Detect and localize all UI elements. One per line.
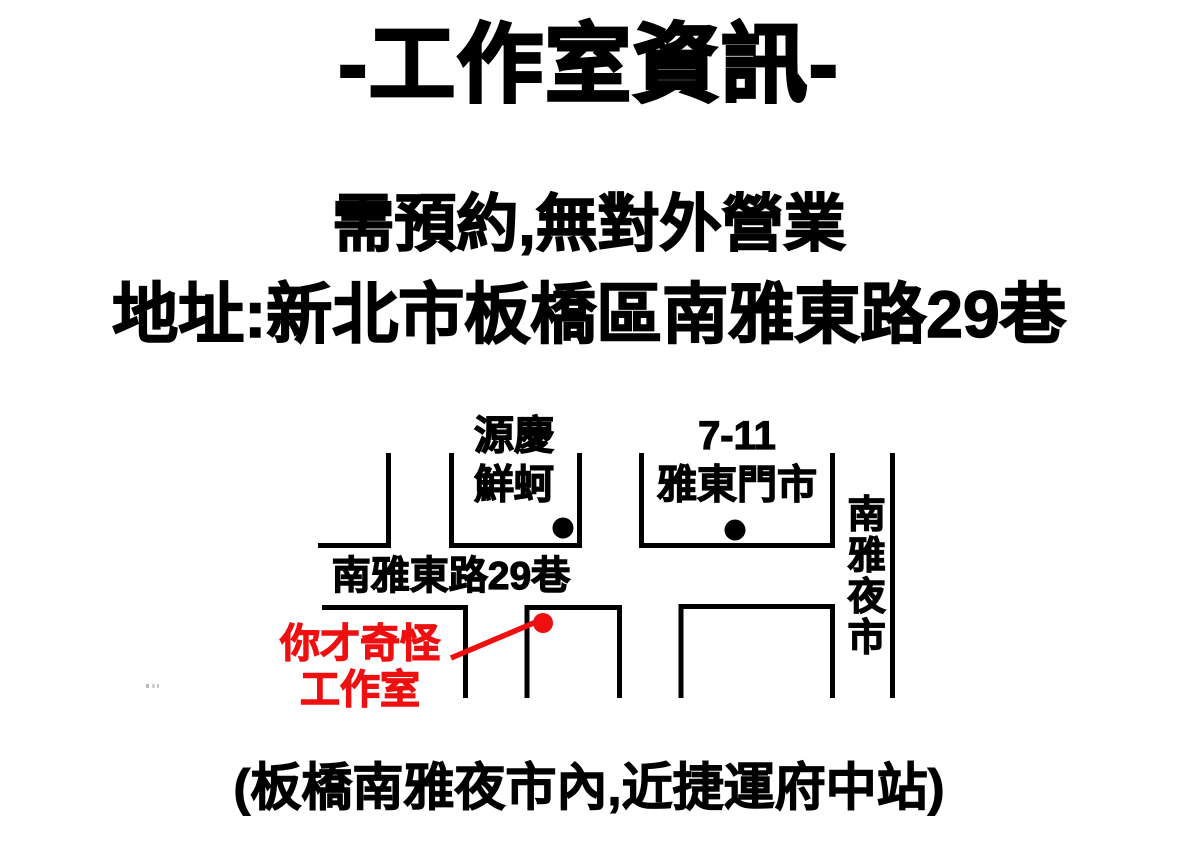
faint-artifact-mark [146, 683, 161, 689]
store1-marker-dot [553, 518, 574, 539]
night-market-label: 南雅夜市 [839, 494, 885, 658]
store2-label: 7-11 雅東門市 [657, 412, 817, 510]
studio-label-line1: 你才奇怪 [280, 621, 440, 667]
flyer-canvas: -工作室資訊- 需預約,無對外營業 地址:新北市板橋區南雅東路29巷 [0, 0, 1179, 842]
store1-label-line1: 源慶 [474, 412, 554, 461]
studio-marker-dot [533, 613, 553, 633]
store1-label: 源慶 鮮蚵 [474, 412, 554, 510]
studio-label: 你才奇怪 工作室 [280, 621, 440, 713]
studio-label-line2: 工作室 [280, 667, 440, 713]
store2-marker-dot [725, 520, 746, 541]
store2-label-line2: 雅東門市 [657, 461, 817, 510]
store2-label-line1: 7-11 [657, 412, 817, 461]
footer-caption: (板橋南雅夜市內,近捷運府中站) [233, 762, 944, 813]
store1-label-line2: 鮮蚵 [474, 461, 554, 510]
street-label: 南雅東路29巷 [332, 553, 570, 601]
map-sketch [0, 0, 1179, 842]
